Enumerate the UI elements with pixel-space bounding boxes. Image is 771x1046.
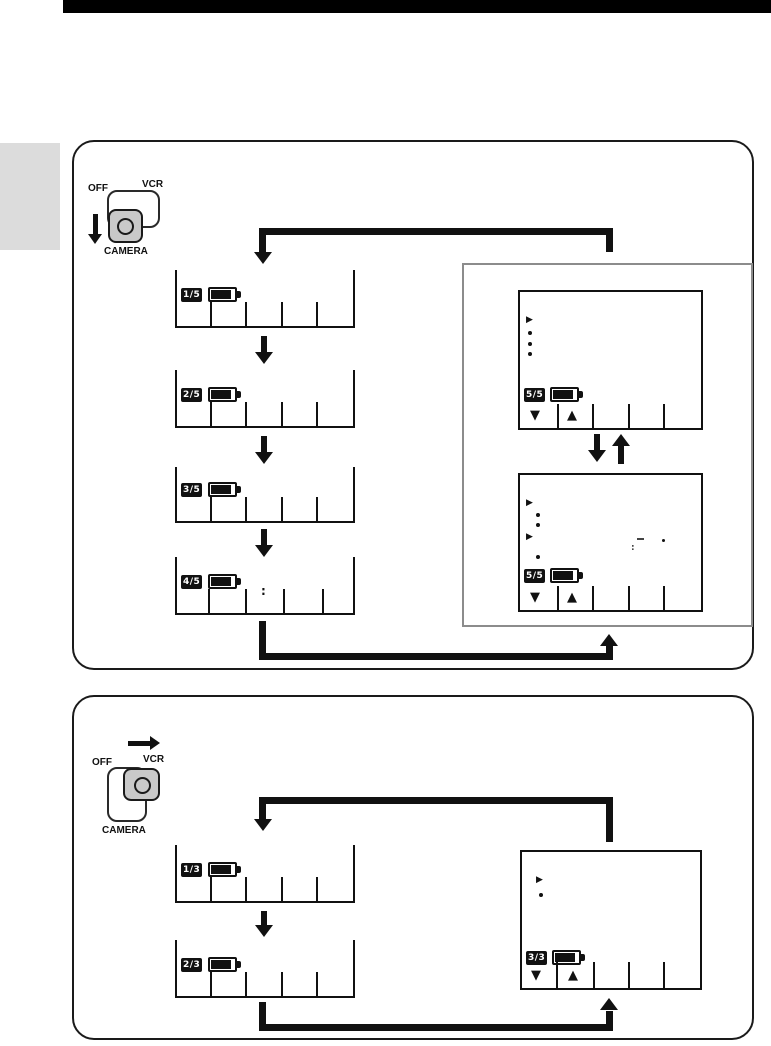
rotate-right-arrow-head-icon — [150, 736, 160, 750]
battery-icon — [208, 482, 242, 497]
flow-arrow-down-head-icon — [255, 925, 273, 937]
battery-icon — [208, 957, 242, 972]
page-badge: 1/3 — [181, 863, 202, 877]
tick-mark — [210, 402, 212, 426]
menu-up-arrow — [618, 446, 624, 464]
tick-mark — [245, 877, 247, 901]
tick-mark — [628, 404, 630, 428]
menu-screen-3of3: ▶ 3/3 ▼ ▲ — [520, 850, 702, 990]
bullet-icon — [536, 513, 540, 517]
tick-mark — [316, 497, 318, 521]
flow-arrow-loop-top — [259, 797, 613, 804]
menu-screen-lower-5of5: ▶ ▶ : 5/5 ▼ ▲ — [518, 473, 703, 612]
flow-arrow-up-head-icon — [600, 634, 618, 646]
tick-mark — [628, 962, 630, 988]
rotate-right-arrow — [128, 741, 150, 746]
switch-knob-ring — [134, 777, 151, 794]
tick-mark — [281, 877, 283, 901]
battery-icon — [208, 387, 242, 402]
menu-cursor-icon: ▶ — [536, 876, 543, 885]
battery-icon — [550, 387, 584, 402]
tick-mark — [316, 972, 318, 996]
bullet-icon — [536, 523, 540, 527]
osd-screen-2of5: 2/5 — [175, 370, 355, 428]
tick-mark — [663, 586, 665, 610]
clock-setting-colon: : — [631, 544, 635, 553]
tick-mark — [245, 402, 247, 426]
tick-mark — [593, 962, 595, 988]
bullet-icon — [539, 893, 543, 897]
tick-mark — [557, 586, 559, 610]
osd-screen-1of3: 1/3 — [175, 845, 355, 903]
battery-icon — [208, 862, 242, 877]
page-badge: 3/5 — [181, 483, 202, 497]
bullet-icon — [528, 342, 532, 346]
power-switch-illustration-vcr: OFF VCR CAMERA — [80, 728, 190, 838]
menu-up-arrow-head-icon — [612, 434, 630, 446]
tick-mark — [245, 302, 247, 326]
bullet-icon — [528, 352, 532, 356]
tick-mark — [628, 586, 630, 610]
rotate-down-arrow — [93, 214, 98, 234]
tick-mark — [316, 877, 318, 901]
clock-colon: : — [261, 585, 266, 597]
flow-arrow-down-head-icon — [255, 545, 273, 557]
flow-arrow-down-head-icon — [255, 452, 273, 464]
flow-arrow-loop-bottom — [259, 653, 613, 660]
tick-mark — [210, 497, 212, 521]
flow-arrow-down-head-icon — [254, 252, 272, 264]
tick-mark — [208, 589, 210, 613]
menu-cursor-icon: ▶ — [526, 316, 533, 325]
battery-icon — [208, 287, 242, 302]
off-label: OFF — [88, 183, 108, 195]
tick-mark — [592, 586, 594, 610]
page-badge: 3/3 — [526, 951, 547, 965]
menu-cursor-icon: ▶ — [526, 499, 533, 508]
tick-mark — [556, 962, 558, 988]
tick-mark — [210, 877, 212, 901]
camera-label: CAMERA — [102, 825, 146, 837]
flow-arrow-loop-top-right — [606, 797, 613, 842]
camera-mode-panel: OFF VCR CAMERA 1/5 2/5 — [72, 140, 754, 670]
page-badge: 2/3 — [181, 958, 202, 972]
tick-mark — [663, 962, 665, 988]
vcr-mode-panel: OFF VCR CAMERA 1/3 2/3 — [72, 695, 754, 1040]
tick-mark — [316, 302, 318, 326]
tick-mark — [245, 497, 247, 521]
down-triangle-icon: ▼ — [530, 591, 540, 604]
page-badge: 1/5 — [181, 288, 202, 302]
switch-knob-ring — [117, 218, 134, 235]
tick-mark — [281, 497, 283, 521]
tick-mark — [592, 404, 594, 428]
off-label: OFF — [92, 757, 112, 769]
flow-arrow-up-head-icon — [600, 998, 618, 1010]
up-triangle-icon: ▲ — [568, 969, 578, 982]
flow-arrow-loop-top-left — [259, 797, 266, 821]
vcr-label: VCR — [143, 754, 164, 766]
tick-mark — [281, 302, 283, 326]
switch-knob — [108, 209, 143, 243]
tick-mark — [557, 404, 559, 428]
tick-mark — [281, 402, 283, 426]
flow-arrow-loop-bottom-right — [606, 646, 613, 660]
battery-icon — [550, 568, 584, 583]
menu-cursor-icon: ▶ — [526, 533, 533, 542]
page-badge: 4/5 — [181, 575, 202, 589]
tick-mark — [210, 972, 212, 996]
tick-mark — [283, 589, 285, 613]
battery-icon — [208, 574, 242, 589]
flow-arrow-loop-bottom-right — [606, 1011, 613, 1024]
flow-arrow-loop-top — [259, 228, 613, 235]
page-badge: 2/5 — [181, 388, 202, 402]
tick-mark — [245, 972, 247, 996]
tick-mark — [281, 972, 283, 996]
tick-mark — [663, 404, 665, 428]
power-switch-illustration-camera: OFF VCR CAMERA — [80, 160, 190, 260]
flow-arrow-loop-bottom — [259, 1024, 613, 1031]
tick-mark — [322, 589, 324, 613]
page-badge: 5/5 — [524, 388, 545, 402]
down-triangle-icon: ▼ — [530, 409, 540, 422]
camera-label: CAMERA — [104, 246, 148, 258]
flow-arrow-down-head-icon — [255, 352, 273, 364]
osd-screen-3of5: 3/5 — [175, 467, 355, 523]
page-header-bar — [63, 0, 771, 13]
flow-arrow-step — [261, 529, 267, 545]
page-margin-tab — [0, 143, 60, 250]
switch-knob — [123, 768, 160, 801]
page-badge: 5/5 — [524, 569, 545, 583]
bullet-icon — [536, 555, 540, 559]
flow-arrow-down-head-icon — [254, 819, 272, 831]
rotate-down-arrow-head-icon — [88, 234, 102, 244]
clock-setting-dot — [662, 539, 665, 542]
menu-down-arrow-head-icon — [588, 450, 606, 462]
tick-mark — [316, 402, 318, 426]
down-triangle-icon: ▼ — [531, 969, 541, 982]
flow-arrow-loop-top-left — [259, 228, 266, 254]
tick-mark — [245, 589, 247, 613]
osd-screen-1of5: 1/5 — [175, 270, 355, 328]
manual-page: OFF VCR CAMERA 1/5 2/5 — [0, 0, 771, 1046]
clock-setting-dash — [637, 538, 644, 540]
tick-mark — [210, 302, 212, 326]
menu-screen-upper-5of5: ▶ 5/5 ▼ ▲ — [518, 290, 703, 430]
flow-arrow-loop-top-right — [606, 228, 613, 252]
osd-screen-2of3: 2/3 — [175, 940, 355, 998]
up-triangle-icon: ▲ — [567, 409, 577, 422]
osd-screen-4of5: 4/5 : — [175, 557, 355, 615]
up-triangle-icon: ▲ — [567, 591, 577, 604]
bullet-icon — [528, 331, 532, 335]
